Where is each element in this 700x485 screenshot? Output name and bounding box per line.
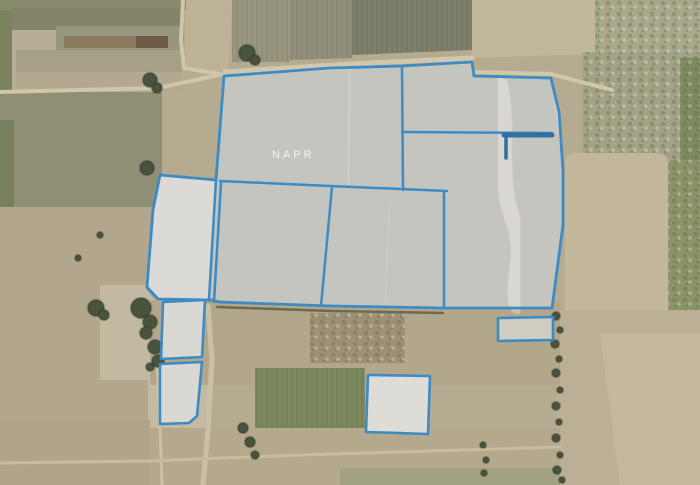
- tree-icon: [552, 369, 560, 377]
- tree-icon: [238, 423, 248, 433]
- tree-icon: [557, 387, 563, 393]
- field-bottom-green-crop-texture: [255, 368, 365, 432]
- tree-icon: [97, 232, 103, 238]
- parcel-small-1[interactable]: [161, 300, 205, 359]
- field-right-smooth: [565, 153, 668, 333]
- field-midbottom-brown-texture: [310, 313, 405, 363]
- field-left-greenedge: [0, 120, 14, 207]
- tree-icon: [480, 442, 486, 448]
- tree-icon: [552, 434, 560, 442]
- tree-icon: [152, 83, 162, 93]
- map-viewport[interactable]: NAPR: [0, 0, 700, 485]
- tree-icon: [250, 55, 260, 65]
- tree-icon: [552, 402, 560, 410]
- parcel-small-2[interactable]: [160, 362, 202, 424]
- satellite-map[interactable]: NAPR: [0, 0, 700, 485]
- tree-icon: [148, 340, 162, 354]
- napr-watermark: NAPR: [272, 149, 315, 161]
- tree-icon: [553, 466, 561, 474]
- field-bottom-greenish: [340, 468, 560, 485]
- tree-icon: [481, 470, 487, 476]
- tree-icon: [483, 457, 489, 463]
- tree-icon: [245, 437, 255, 447]
- tree-icon: [75, 255, 81, 261]
- tree-icon: [99, 310, 109, 320]
- field-topleft-darkbrown: [136, 36, 168, 48]
- tree-icon: [559, 477, 565, 483]
- tree-icon: [556, 356, 562, 362]
- field-topright-mottle-texture: [595, 0, 700, 52]
- tree-icon: [557, 452, 563, 458]
- field-rightedge-green-low-texture: [668, 160, 700, 333]
- tree-icon: [140, 327, 152, 339]
- tree-icon: [251, 451, 259, 459]
- field-midleft-olive: [0, 92, 162, 207]
- field-topleft-roadside: [186, 0, 232, 72]
- field-topmid-dark-texture: [352, 0, 472, 55]
- field-topleft-olivetan: [16, 50, 182, 72]
- tree-icon: [557, 327, 563, 333]
- tree-icon: [146, 363, 154, 371]
- boundary-a-b: [402, 66, 403, 190]
- parcel-small-3[interactable]: [498, 317, 553, 341]
- field-bottomleft: [0, 420, 150, 485]
- tree-icon: [556, 419, 562, 425]
- tree-icon: [140, 161, 154, 175]
- parcel-square-south[interactable]: [366, 375, 430, 434]
- field-topleft-brown: [64, 36, 136, 48]
